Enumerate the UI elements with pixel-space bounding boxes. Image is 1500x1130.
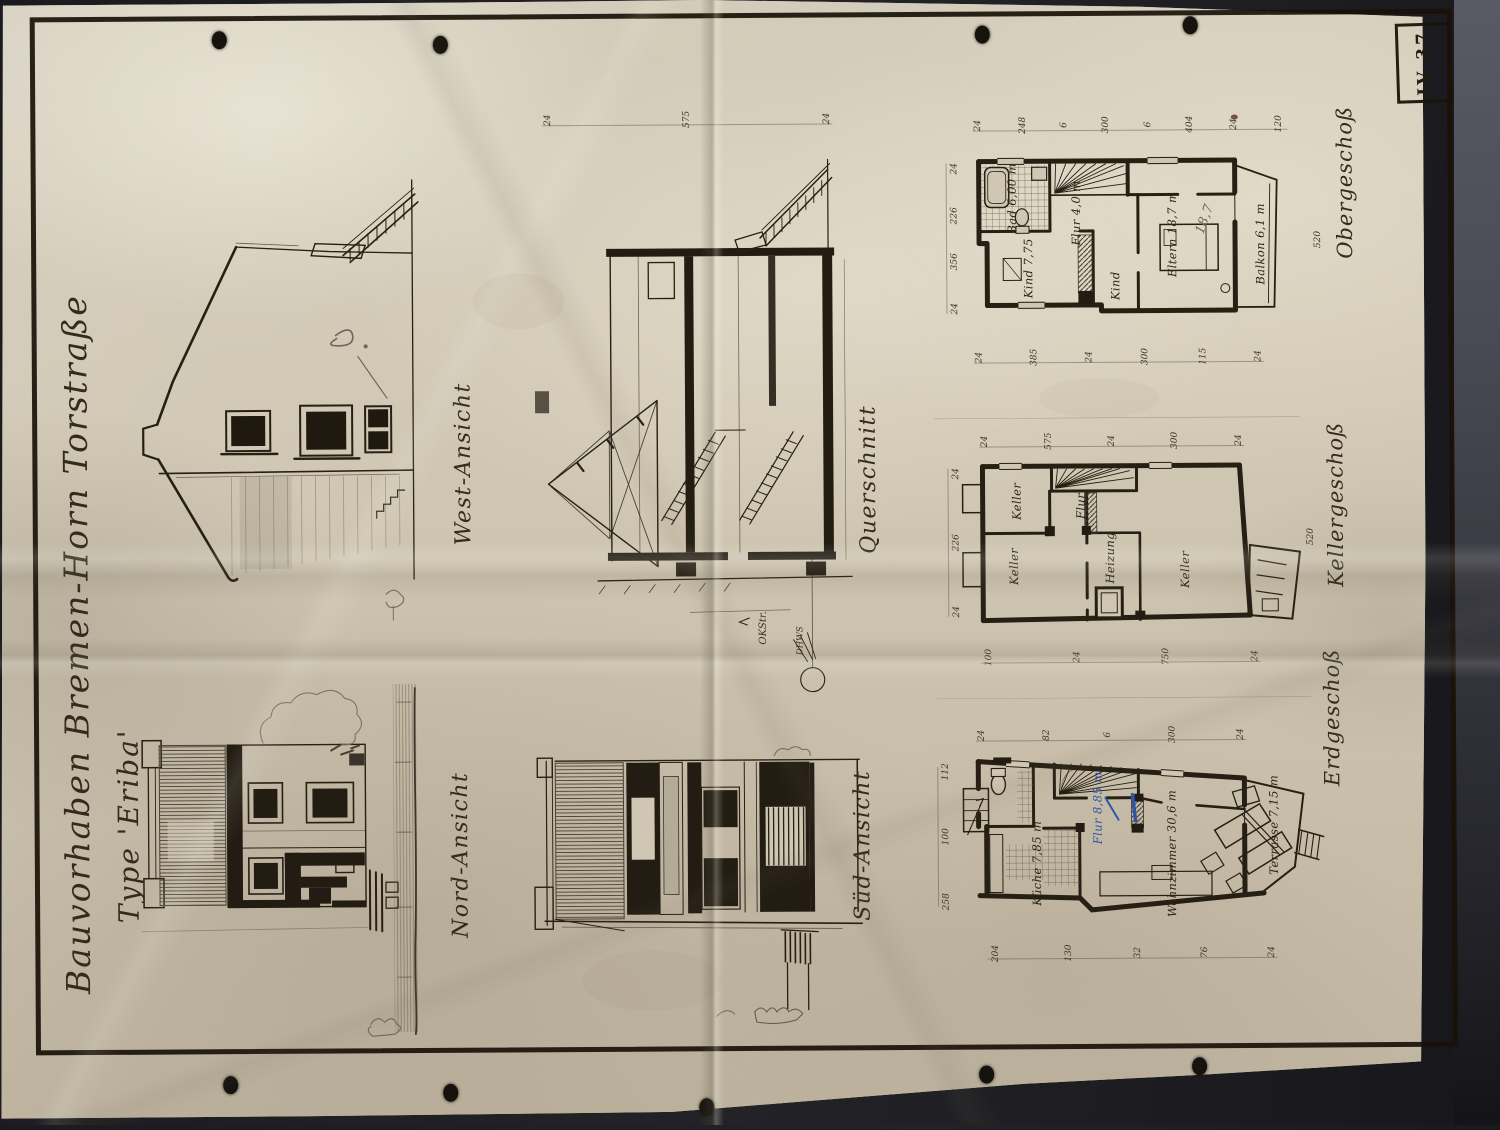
dim-value: 24 [973, 120, 983, 132]
room-flur-og: Flur 4,0 m [1069, 180, 1083, 245]
room-bad: Bad 6,00 m [1005, 163, 1019, 234]
dim-value: 24 [1253, 350, 1263, 362]
dim-value: 24 [1085, 351, 1095, 363]
dim-value: 258 [942, 893, 952, 910]
room-flur-kg: Flur [1074, 493, 1088, 519]
label-kellergeschoss: Kellergeschoß [1323, 422, 1348, 587]
dim-value: 6 [1143, 122, 1153, 128]
drawing-title: Bauvorhaben Bremen-Horn Torstraße [55, 294, 98, 994]
room-terrasse: Terrasse 7,15 m [1266, 775, 1281, 875]
room-keller2: Keller [1007, 548, 1021, 585]
dim-og-side: 520 [1313, 231, 1323, 248]
dims-og-left: 24 226 356 24 [946, 164, 964, 314]
dim-value: 575 [1043, 433, 1053, 450]
dim-value: 750 [1161, 648, 1171, 665]
dim-value: 24 [1229, 118, 1239, 130]
dim-value: 575 [682, 111, 692, 128]
dims-section-top: 24 575 24 [542, 99, 832, 126]
room-kind1: Kind 7,75 [1021, 238, 1035, 298]
dim-value: 300 [1170, 432, 1180, 449]
dim-value: 300 [1101, 116, 1111, 133]
dim-value: 130 [1063, 944, 1073, 961]
dim-value: 24 [822, 113, 832, 125]
dim-value: 24 [1107, 435, 1117, 447]
room-flur-eg: Flur 8,85 m [1090, 771, 1104, 844]
dim-value: 24 [974, 352, 984, 364]
label-obergeschoss: Obergeschoß [1332, 106, 1357, 259]
dim-value: 24 [1233, 434, 1243, 446]
dim-value: 82 [1041, 729, 1051, 741]
dims-kg-left: 24 226 24 [947, 469, 965, 617]
dim-value: 24 [1073, 651, 1083, 663]
drawing-subtitle: Type 'Eriba' [112, 728, 146, 923]
label-sued-ansicht: Süd-Ansicht [850, 770, 876, 921]
nord-elevation-drawing [141, 684, 419, 1038]
dim-value: 24 [950, 163, 960, 175]
annotation-dhws: DHWS [795, 626, 805, 655]
dim-value: 385 [1030, 349, 1040, 366]
dim-value: 24 [1267, 946, 1277, 958]
dim-value: 6 [1103, 732, 1113, 738]
dim-value: 356 [950, 253, 960, 270]
dim-value: 204 [991, 945, 1001, 962]
dim-value: 32 [1133, 947, 1143, 959]
room-kueche: Küche 7,85 m [1030, 821, 1045, 906]
dim-value: 24 [950, 303, 960, 315]
dim-value: 24 [952, 606, 962, 618]
dims-og-bottom: 24 385 24 300 115 24 [974, 337, 1264, 364]
sheet-content: IV 37 [0, 0, 1500, 1130]
dim-value: 115 [1198, 348, 1208, 365]
dim-value: 24 [543, 114, 553, 126]
label-nord-ansicht: Nord-Ansicht [448, 772, 474, 938]
room-keller3: Keller [1178, 551, 1192, 588]
dims-eg-top: 24 82 6 300 24 [976, 715, 1246, 742]
dim-kg-side: 520 [1306, 528, 1316, 545]
dims-eg-left: 112 100 258 [937, 767, 955, 907]
dim-value: 24 [980, 436, 990, 448]
room-balkon: Balkon 6,1 m [1253, 203, 1267, 285]
dim-value: 226 [952, 534, 962, 551]
dim-value: 24 [977, 730, 987, 742]
room-eltern: Eltern 18,7 m [1165, 192, 1180, 278]
dim-value: 24 [1235, 728, 1245, 740]
dims-kg-top: 24 575 24 300 24 [979, 421, 1244, 448]
dim-value: 404 [1185, 116, 1195, 133]
dim-value: 76 [1200, 946, 1210, 958]
room-wohnzimmer: Wohnzimmer 30,6 m [1164, 790, 1179, 917]
dims-eg-bottom: 204 130 32 76 24 [987, 933, 1277, 960]
dim-value: 120 [1274, 115, 1284, 132]
label-querschnitt: Querschnitt [856, 405, 882, 554]
dim-value: 226 [950, 207, 960, 224]
dims-og-top: 24 248 6 300 6 404 24 120 [972, 105, 1287, 132]
drawing-canvas [0, 0, 1500, 1130]
annotation-okstr: OKStr. [758, 611, 769, 644]
dim-value: 300 [1140, 348, 1150, 365]
dim-value: 24 [1250, 650, 1260, 662]
dims-kg-bottom: 100 24 750 24 [980, 637, 1260, 664]
dim-value: 24 [951, 468, 961, 480]
room-heizung: Heizung [1103, 532, 1117, 584]
west-elevation-drawing [142, 180, 421, 622]
dim-value: 300 [1168, 726, 1178, 743]
dim-value: 112 [941, 763, 951, 780]
label-west-ansicht: West-Ansicht [450, 382, 476, 545]
dim-value: 6 [1059, 122, 1069, 128]
dim-value: 100 [984, 649, 994, 666]
room-kind2: Kind [1108, 271, 1122, 300]
room-keller1: Keller [1010, 483, 1024, 520]
dim-value: 248 [1018, 117, 1028, 134]
querschnitt-drawing [534, 159, 853, 693]
dim-value: 100 [942, 828, 952, 845]
label-erdgeschoss: Erdgeschoß [1320, 649, 1345, 787]
